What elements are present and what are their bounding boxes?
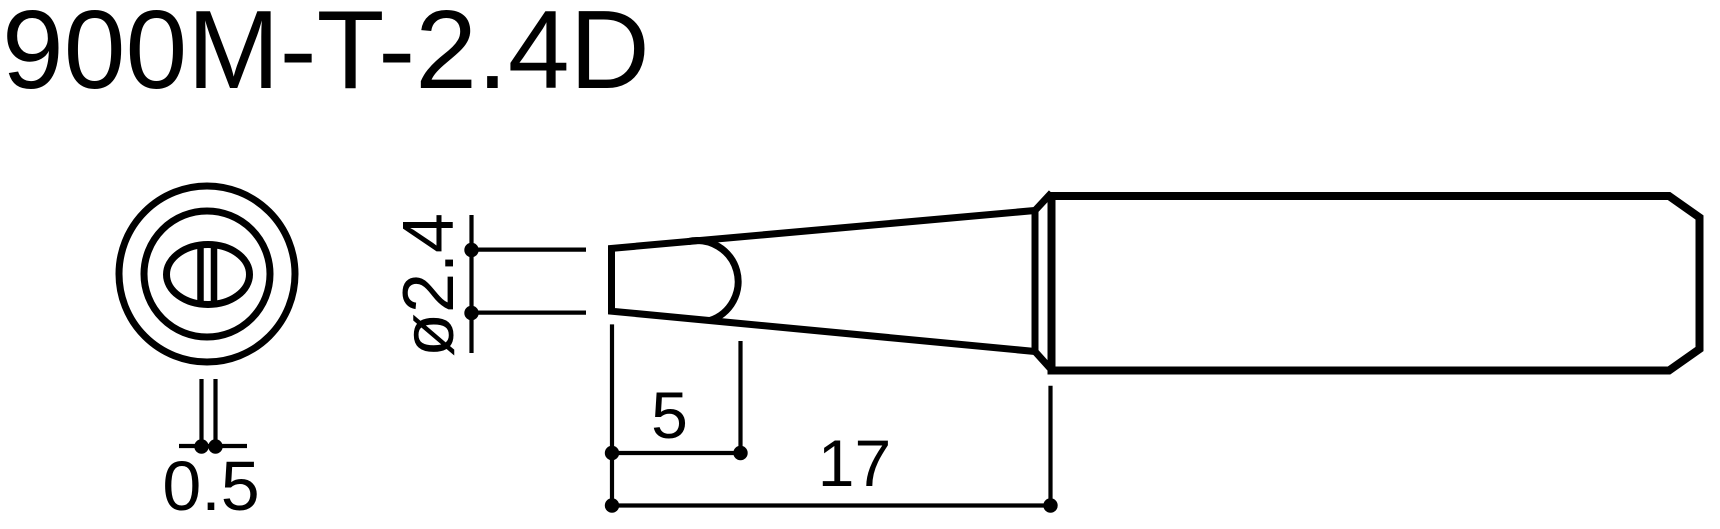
svg-text:900M-T-2.4D: 900M-T-2.4D xyxy=(2,0,650,112)
svg-text:ø2.4: ø2.4 xyxy=(389,213,469,357)
svg-text:5: 5 xyxy=(651,378,688,452)
svg-text:0.5: 0.5 xyxy=(162,447,259,524)
svg-text:17: 17 xyxy=(818,426,891,500)
